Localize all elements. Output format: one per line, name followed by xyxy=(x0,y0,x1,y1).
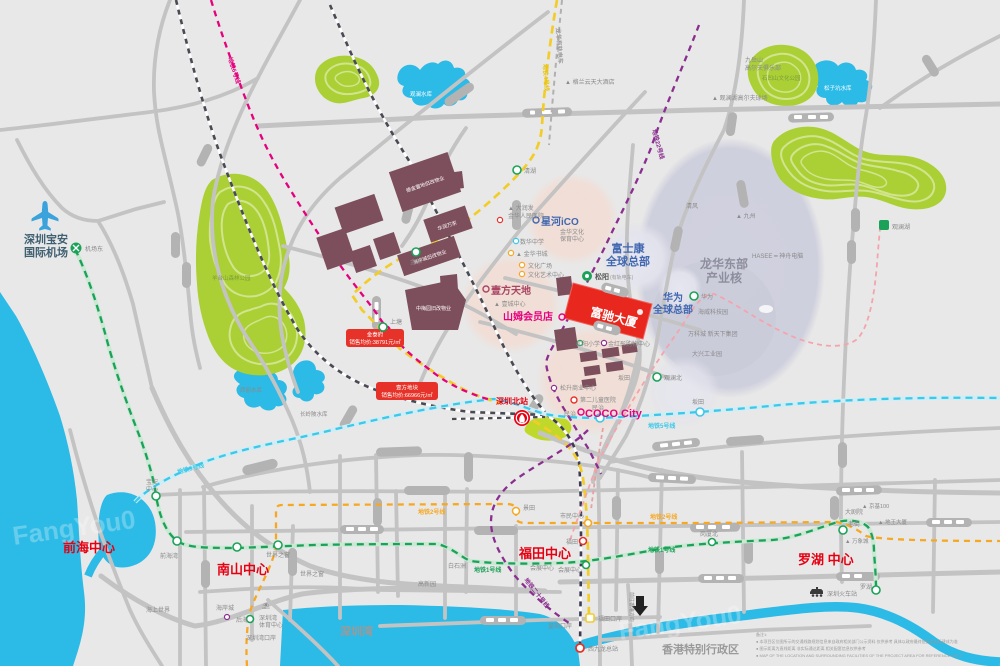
svg-text:深圳北站: 深圳北站 xyxy=(496,396,528,406)
svg-text:金华: 金华 xyxy=(410,258,422,266)
svg-text:备注1:: 备注1: xyxy=(756,631,767,637)
svg-text:体育中心: 体育中心 xyxy=(259,621,283,629)
svg-text:山姆会员店: 山姆会员店 xyxy=(503,310,553,323)
svg-text:南山中心: 南山中心 xyxy=(217,562,269,577)
svg-text:会展中心: 会展中心 xyxy=(530,564,554,572)
svg-text:金华文化: 金华文化 xyxy=(560,228,584,236)
svg-text:清风: 清风 xyxy=(686,202,698,210)
svg-text:大兴工业园: 大兴工业园 xyxy=(692,350,722,358)
svg-text:▲ 观澜湖高尔夫球场: ▲ 观澜湖高尔夫球场 xyxy=(712,94,768,102)
svg-text:海岸城: 海岸城 xyxy=(216,604,234,612)
svg-text:地铁1号线: 地铁1号线 xyxy=(474,566,501,574)
svg-text:会展中心: 会展中心 xyxy=(558,566,582,574)
svg-text:华为: 华为 xyxy=(701,293,713,301)
svg-text:深圳湾: 深圳湾 xyxy=(259,614,277,622)
svg-text:福田中心: 福田中心 xyxy=(518,546,571,561)
svg-text:HASEE ━ 神舟电脑: HASEE ━ 神舟电脑 xyxy=(752,252,803,260)
svg-text:香港特别行政区: 香港特别行政区 xyxy=(661,642,739,656)
svg-text:羊台山森林公园: 羊台山森林公园 xyxy=(212,274,251,282)
svg-text:上塘: 上塘 xyxy=(390,318,402,326)
svg-text:深圳宝安: 深圳宝安 xyxy=(24,232,68,246)
svg-text:白石洲: 白石洲 xyxy=(448,562,466,570)
svg-text:保育中心: 保育中心 xyxy=(560,235,584,243)
svg-text:深圳湾: 深圳湾 xyxy=(340,624,373,638)
svg-text:富士康: 富士康 xyxy=(612,241,646,255)
svg-text:▲ 壹城中心: ▲ 壹城中心 xyxy=(494,300,526,308)
svg-text:坂田: 坂田 xyxy=(692,398,704,406)
svg-text:西丽水库: 西丽水库 xyxy=(240,386,263,394)
svg-text:罗湖 中心: 罗湖 中心 xyxy=(798,552,854,567)
svg-text:▲ 地王大厦: ▲ 地王大厦 xyxy=(878,518,907,526)
svg-text:福田: 福田 xyxy=(566,538,578,546)
svg-text:景田: 景田 xyxy=(523,505,535,512)
svg-text:罗湖: 罗湖 xyxy=(860,583,872,591)
svg-text:第二儿童医院: 第二儿童医院 xyxy=(580,396,616,404)
svg-text:● MAP OF THE LOCATION AND SURR: ● MAP OF THE LOCATION AND SURROUNDING FA… xyxy=(756,653,962,658)
svg-text:深圳湾口岸: 深圳湾口岸 xyxy=(246,634,276,642)
svg-text:金泰府: 金泰府 xyxy=(367,331,384,339)
svg-text:▲ 九州: ▲ 九州 xyxy=(736,212,756,220)
svg-text:▲ 万象城: ▲ 万象城 xyxy=(845,537,869,545)
svg-text:民治: 民治 xyxy=(564,410,576,418)
svg-text:高新园: 高新园 xyxy=(418,580,436,588)
svg-text:机场东: 机场东 xyxy=(85,245,103,253)
svg-text:西九龙总站: 西九龙总站 xyxy=(588,645,618,653)
svg-text:金红彤购物中心: 金红彤购物中心 xyxy=(608,340,650,348)
svg-text:金华人民医院: 金华人民医院 xyxy=(508,212,544,220)
svg-text:地铁2号线: 地铁2号线 xyxy=(418,508,445,516)
svg-text:观澜水库: 观澜水库 xyxy=(410,90,433,98)
svg-text:松阳: 松阳 xyxy=(595,272,609,281)
svg-text:全球总部: 全球总部 xyxy=(652,303,693,316)
svg-text:▲ 金华书城: ▲ 金华书城 xyxy=(516,250,548,258)
svg-text:● 图示距离为直线距离 非实际通达距离 相关配套信息仅供参考: ● 图示距离为直线距离 非实际通达距离 相关配套信息仅供参考 xyxy=(756,645,866,651)
svg-text:皇岗口岸: 皇岗口岸 xyxy=(548,622,572,630)
svg-text:清湖: 清湖 xyxy=(524,167,536,175)
svg-text:松升商业中心: 松升商业中心 xyxy=(560,384,596,392)
svg-text:松子坑水库: 松子坑水库 xyxy=(824,84,852,92)
svg-text:岗厦北: 岗厦北 xyxy=(700,530,718,538)
svg-text:宝安: 宝安 xyxy=(146,478,158,486)
svg-text:中心: 中心 xyxy=(146,485,158,493)
svg-text:▲ 格兰云天大酒店: ▲ 格兰云天大酒店 xyxy=(565,78,615,86)
svg-text:大剧院: 大剧院 xyxy=(845,508,863,516)
svg-text:华为: 华为 xyxy=(663,291,683,304)
svg-text:深圳火车站: 深圳火车站 xyxy=(827,590,857,598)
svg-text:地铁1号线: 地铁1号线 xyxy=(648,546,675,554)
svg-text:观澜湖: 观澜湖 xyxy=(892,223,910,231)
svg-text:数华中学: 数华中学 xyxy=(520,238,544,246)
svg-text:后海: 后海 xyxy=(236,616,248,624)
svg-text:龙华东部: 龙华东部 xyxy=(700,256,748,271)
svg-text:前海湾: 前海湾 xyxy=(160,552,178,560)
svg-text:国际机场: 国际机场 xyxy=(24,245,68,259)
svg-text:海上世界: 海上世界 xyxy=(146,606,170,614)
svg-text:壹方天地: 壹方天地 xyxy=(491,284,531,297)
svg-text:● 本项目区位图所示的交通线路规划信息来自政府相关部门公示资: ● 本项目区位图所示的交通线路规划信息来自政府相关部门公示资料 仅供参考 具体以… xyxy=(756,638,958,644)
svg-text:世界之窗: 世界之窗 xyxy=(266,551,290,559)
svg-text:▲ 京基100: ▲ 京基100 xyxy=(862,502,889,510)
svg-text:地铁2号线: 地铁2号线 xyxy=(650,513,677,521)
svg-text:市民中心: 市民中心 xyxy=(560,512,584,520)
svg-text:松阳小学: 松阳小学 xyxy=(576,340,600,348)
svg-text:世界之窗: 世界之窗 xyxy=(300,570,324,578)
svg-text:文化艺术中心: 文化艺术中心 xyxy=(528,271,564,279)
svg-text:星河iCO: 星河iCO xyxy=(541,216,579,228)
svg-text:⛱: ⛱ xyxy=(262,602,270,610)
svg-text:销售均价:66966元/㎡: 销售均价:66966元/㎡ xyxy=(381,391,433,399)
svg-text:(有轨电车): (有轨电车) xyxy=(610,274,634,281)
svg-text:海威科技园: 海威科技园 xyxy=(698,308,728,316)
svg-text:长岭陂水库: 长岭陂水库 xyxy=(300,410,328,418)
svg-text:万科城 新天下集团: 万科城 新天下集团 xyxy=(688,330,738,338)
svg-text:观澜北: 观澜北 xyxy=(664,374,682,382)
svg-text:中梅园旧改物业: 中梅园旧改物业 xyxy=(416,305,451,312)
svg-text:九岳山: 九岳山 xyxy=(745,56,763,64)
svg-text:全球总部: 全球总部 xyxy=(605,254,650,268)
svg-text:销售均价:38791元/㎡: 销售均价:38791元/㎡ xyxy=(349,338,401,346)
svg-text:▲ 大润发: ▲ 大润发 xyxy=(508,204,534,212)
svg-text:坂田: 坂田 xyxy=(618,374,630,382)
svg-text:地铁5号线: 地铁5号线 xyxy=(648,422,675,430)
svg-text:老街: 老街 xyxy=(848,520,860,528)
svg-text:高尔夫俱乐部: 高尔夫俱乐部 xyxy=(745,64,781,72)
svg-text:COCO City: COCO City xyxy=(585,408,643,420)
svg-text:文化广场: 文化广场 xyxy=(528,262,552,270)
svg-text:产业核: 产业核 xyxy=(706,270,742,285)
svg-text:石凹山文化公园: 石凹山文化公园 xyxy=(762,74,801,82)
svg-text:壹方地块: 壹方地块 xyxy=(396,384,419,392)
